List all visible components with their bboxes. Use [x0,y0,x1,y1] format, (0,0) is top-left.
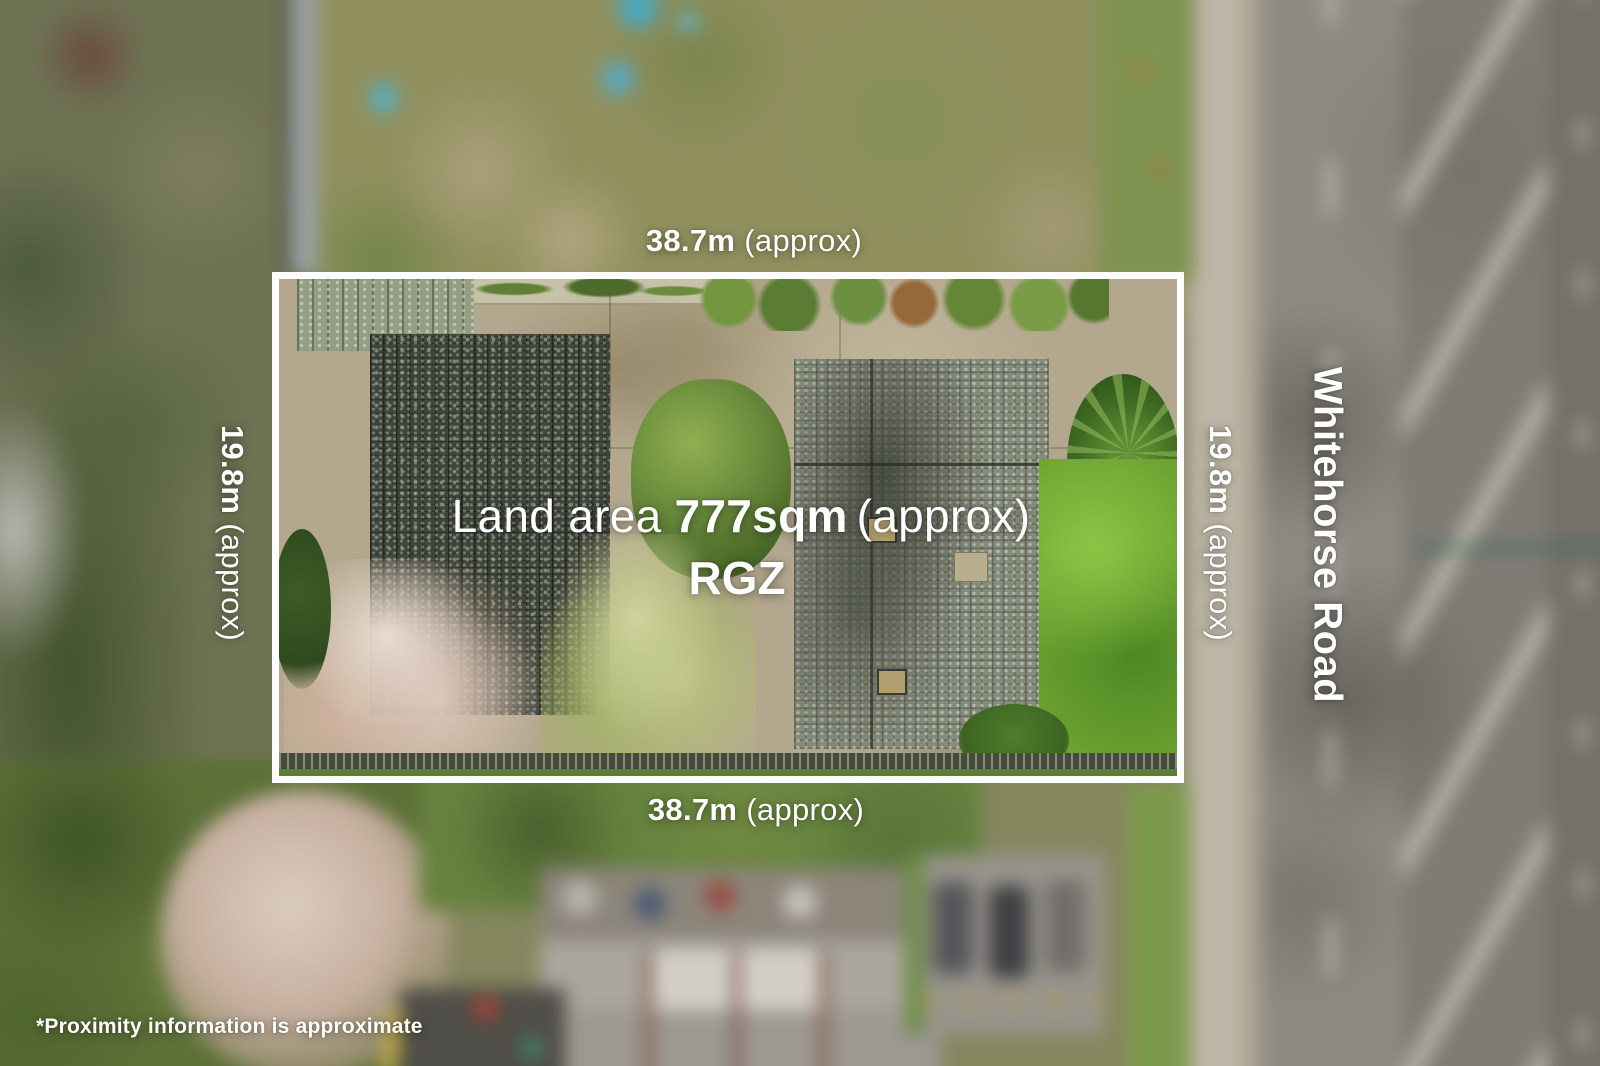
nature-strip-top [1100,0,1195,280]
land-area-label: Land area777sqm(approx) [452,489,1031,543]
edge-line-dashes [1580,0,1585,1066]
dimension-qualifier: (approx) [746,792,864,827]
disclaimer-text: *Proximity information is approximate [36,1015,423,1039]
road-chevron-markings [1402,0,1548,1066]
dimension-qualifier: (approx) [744,223,862,258]
parked-car [989,886,1029,978]
dimension-qualifier: (approx) [1203,523,1238,641]
nature-strip-bottom [1128,783,1190,1066]
far-lane [1548,0,1600,1066]
land-area-prefix: Land area [452,490,662,542]
dimension-label-bottom: 38.7m(approx) [648,792,864,828]
red-object [474,996,498,1020]
roof-seam [645,950,652,1066]
dimension-value: 19.8m [1203,425,1238,514]
parked-car [1045,880,1085,972]
aerial-property-photo: 38.7m(approx) 38.7m(approx) 19.8m(approx… [0,0,1600,1066]
blue-tarp-objects [350,0,730,140]
roof-seam [820,950,827,1066]
land-area-value: 777sqm [675,490,848,542]
road-name-label: Whitehorse Road [1305,367,1350,703]
zoning-label: RGZ [688,551,785,605]
dimension-value: 19.8m [215,425,250,514]
yellow-parking-line [920,998,1100,1003]
parked-car [933,882,973,974]
teal-object [522,1038,542,1058]
dimension-label-top: 38.7m(approx) [646,223,862,259]
overhead-wire [1415,546,1600,551]
dimension-qualifier: (approx) [215,523,250,641]
roof-seam [733,950,740,1066]
dimension-label-right: 19.8m(approx) [1202,425,1238,641]
land-area-qualifier: (approx) [857,490,1031,542]
neighbour-driveway [284,0,318,275]
dimension-value: 38.7m [648,792,737,827]
yard-objects-strip [540,868,930,940]
dimension-label-left: 19.8m(approx) [214,425,250,641]
dimension-value: 38.7m [646,223,735,258]
